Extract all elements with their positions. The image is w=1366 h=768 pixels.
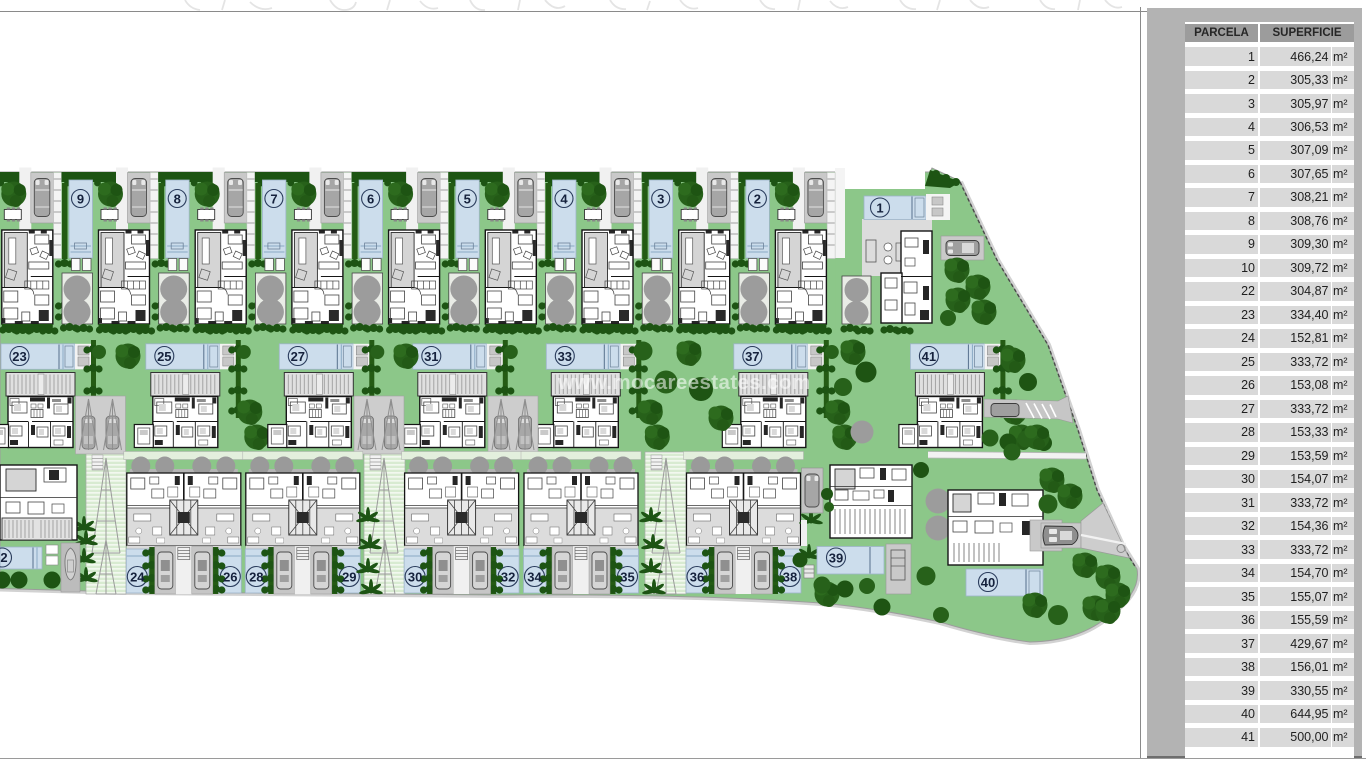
svg-text:30: 30: [408, 570, 422, 585]
svg-text:9: 9: [77, 192, 84, 207]
svg-text:25: 25: [157, 349, 171, 364]
svg-text:6: 6: [367, 192, 374, 207]
svg-text:24: 24: [130, 570, 145, 585]
svg-text:8: 8: [174, 192, 181, 207]
svg-text:28: 28: [249, 570, 263, 585]
svg-text:37: 37: [745, 349, 759, 364]
svg-text:2: 2: [754, 192, 761, 207]
svg-text:36: 36: [690, 570, 704, 585]
svg-text:31: 31: [424, 349, 438, 364]
svg-text:29: 29: [342, 570, 356, 585]
svg-text:1: 1: [876, 201, 883, 216]
svg-text:38: 38: [783, 570, 797, 585]
svg-text:35: 35: [620, 570, 634, 585]
svg-text:34: 34: [527, 570, 542, 585]
svg-text:27: 27: [291, 349, 305, 364]
svg-text:32: 32: [501, 570, 515, 585]
svg-text:5: 5: [464, 192, 471, 207]
svg-text:2: 2: [0, 550, 7, 565]
svg-text:7: 7: [270, 192, 277, 207]
svg-text:41: 41: [922, 349, 936, 364]
svg-text:www.mocareestates.com: www.mocareestates.com: [557, 371, 811, 394]
svg-text:40: 40: [981, 575, 995, 590]
svg-text:33: 33: [558, 349, 572, 364]
svg-text:3: 3: [657, 192, 664, 207]
svg-text:4: 4: [560, 192, 568, 207]
svg-text:23: 23: [12, 349, 26, 364]
svg-text:26: 26: [223, 570, 237, 585]
svg-text:39: 39: [829, 551, 843, 566]
